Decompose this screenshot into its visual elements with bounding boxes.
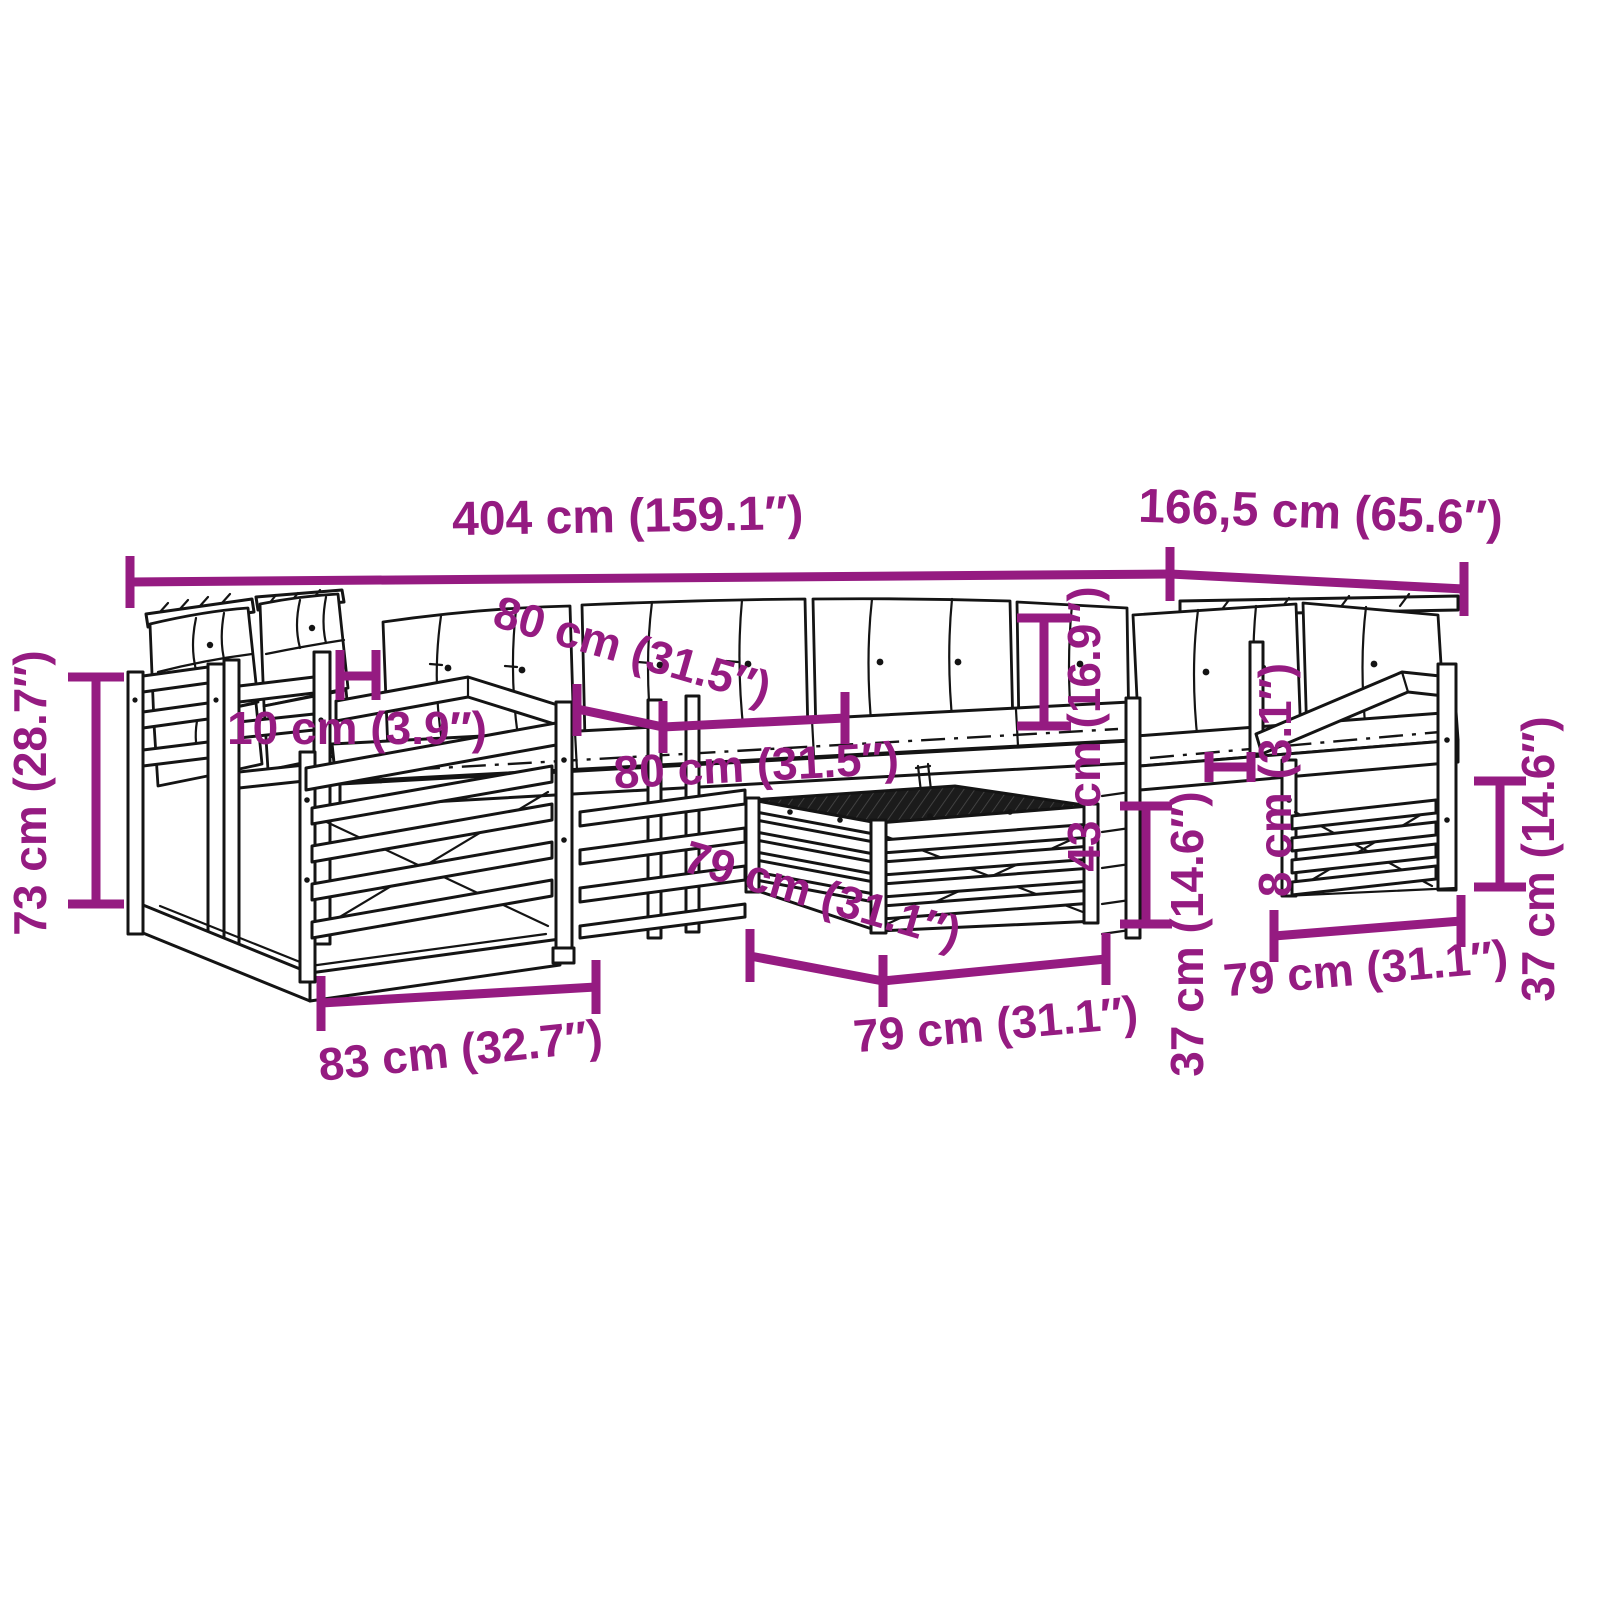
dimension-total-width: 404 cm (159.1″) [130,487,1170,608]
label-backrest-height: 43 cm (16.9″) [1058,586,1110,871]
dimension-overall-height: 73 cm (28.7″) [4,650,124,935]
label-seat-height-right: 37 cm (14.6″) [1512,716,1564,1001]
label-armchair-depth: 83 cm (32.7″) [316,1009,605,1091]
label-total-width: 404 cm (159.1″) [452,487,804,546]
label-total-depth: 166,5 cm (65.6″) [1137,480,1503,546]
dimension-module-width-right: 79 cm (31.1″) [1221,895,1510,1006]
label-seat-height-center: 37 cm (14.6″) [1161,791,1213,1076]
label-armrest-width: 10 cm (3.9″) [227,702,487,754]
label-cushion-thickness: 8 cm (3.1″) [1249,663,1301,897]
label-overall-height: 73 cm (28.7″) [4,650,56,935]
label-module-width-right: 79 cm (31.1″) [1221,930,1510,1007]
diagram-stage: 404 cm (159.1″) 166,5 cm (65.6″) 73 cm (… [0,0,1600,1600]
dimension-diagram: 404 cm (159.1″) 166,5 cm (65.6″) 73 cm (… [0,0,1600,1600]
label-table-width: 79 cm (31.1″) [851,986,1140,1063]
